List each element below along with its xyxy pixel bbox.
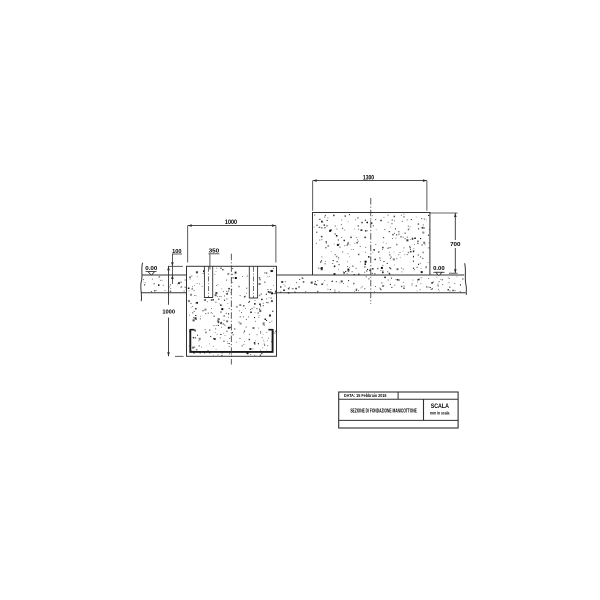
svg-text:SCALA: SCALA [431,403,450,410]
svg-text:0.00: 0.00 [433,266,445,272]
svg-text:700: 700 [450,242,460,248]
svg-text:DATA: 15 Febbraio 2015: DATA: 15 Febbraio 2015 [344,393,387,398]
svg-text:non in scala: non in scala [430,411,450,416]
svg-text:SEZIONE DI FONDAZIONE MANICOTT: SEZIONE DI FONDAZIONE MANICOTTONE [350,408,417,414]
svg-text:1000: 1000 [162,310,175,316]
